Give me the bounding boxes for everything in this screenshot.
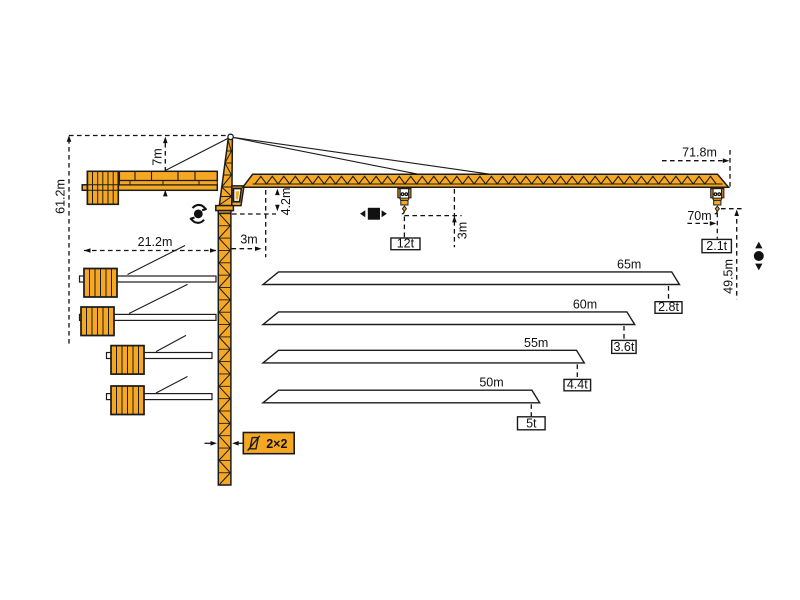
svg-text:2.1t: 2.1t — [706, 239, 727, 253]
svg-text:71.8m: 71.8m — [682, 146, 717, 160]
svg-text:7m: 7m — [151, 148, 165, 165]
svg-text:4.2m: 4.2m — [279, 188, 293, 216]
svg-text:61.2m: 61.2m — [54, 179, 68, 214]
svg-text:5t: 5t — [526, 417, 537, 431]
svg-text:65m: 65m — [617, 257, 641, 271]
svg-text:70m: 70m — [687, 209, 711, 223]
svg-text:2×2: 2×2 — [266, 437, 287, 451]
svg-text:3m: 3m — [456, 222, 470, 239]
svg-text:50m: 50m — [479, 376, 503, 390]
svg-text:12t: 12t — [397, 237, 415, 251]
svg-text:55m: 55m — [524, 336, 548, 350]
svg-text:60m: 60m — [573, 297, 597, 311]
svg-text:3m: 3m — [240, 233, 257, 247]
svg-text:21.2m: 21.2m — [138, 235, 173, 249]
svg-text:2.8t: 2.8t — [658, 300, 679, 314]
svg-text:49.5m: 49.5m — [722, 259, 736, 294]
svg-text:3.6t: 3.6t — [613, 340, 634, 354]
svg-text:4.4t: 4.4t — [567, 378, 588, 392]
